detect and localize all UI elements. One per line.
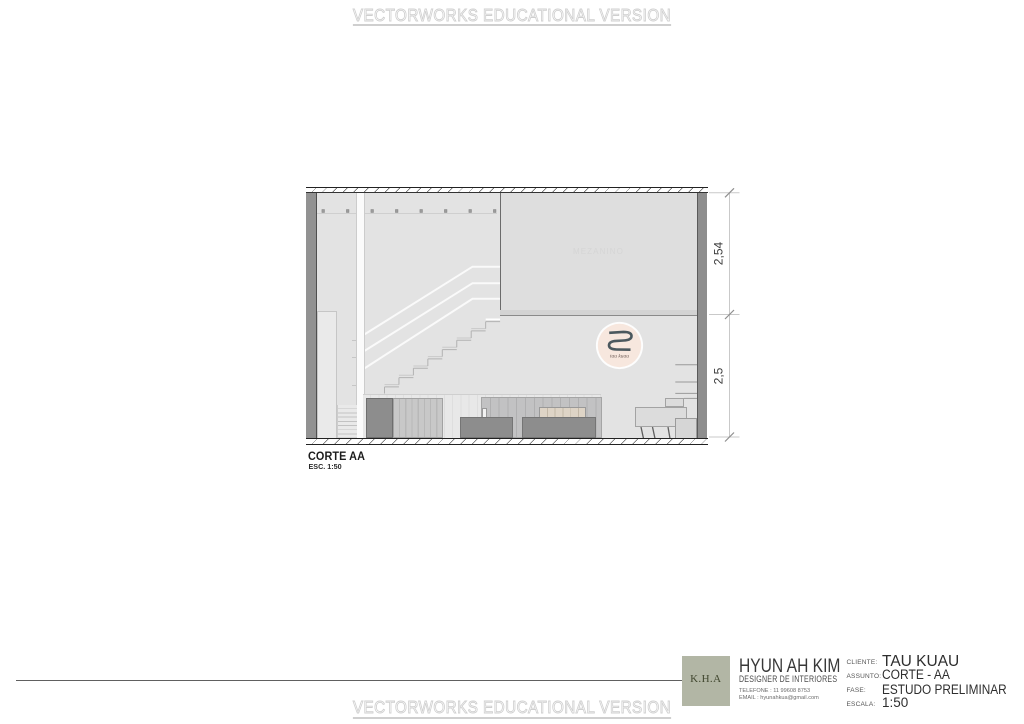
svg-text:2,5: 2,5 [712,367,726,384]
svg-text:tau kuau: tau kuau [610,354,629,360]
svg-text:2,54: 2,54 [712,241,726,265]
